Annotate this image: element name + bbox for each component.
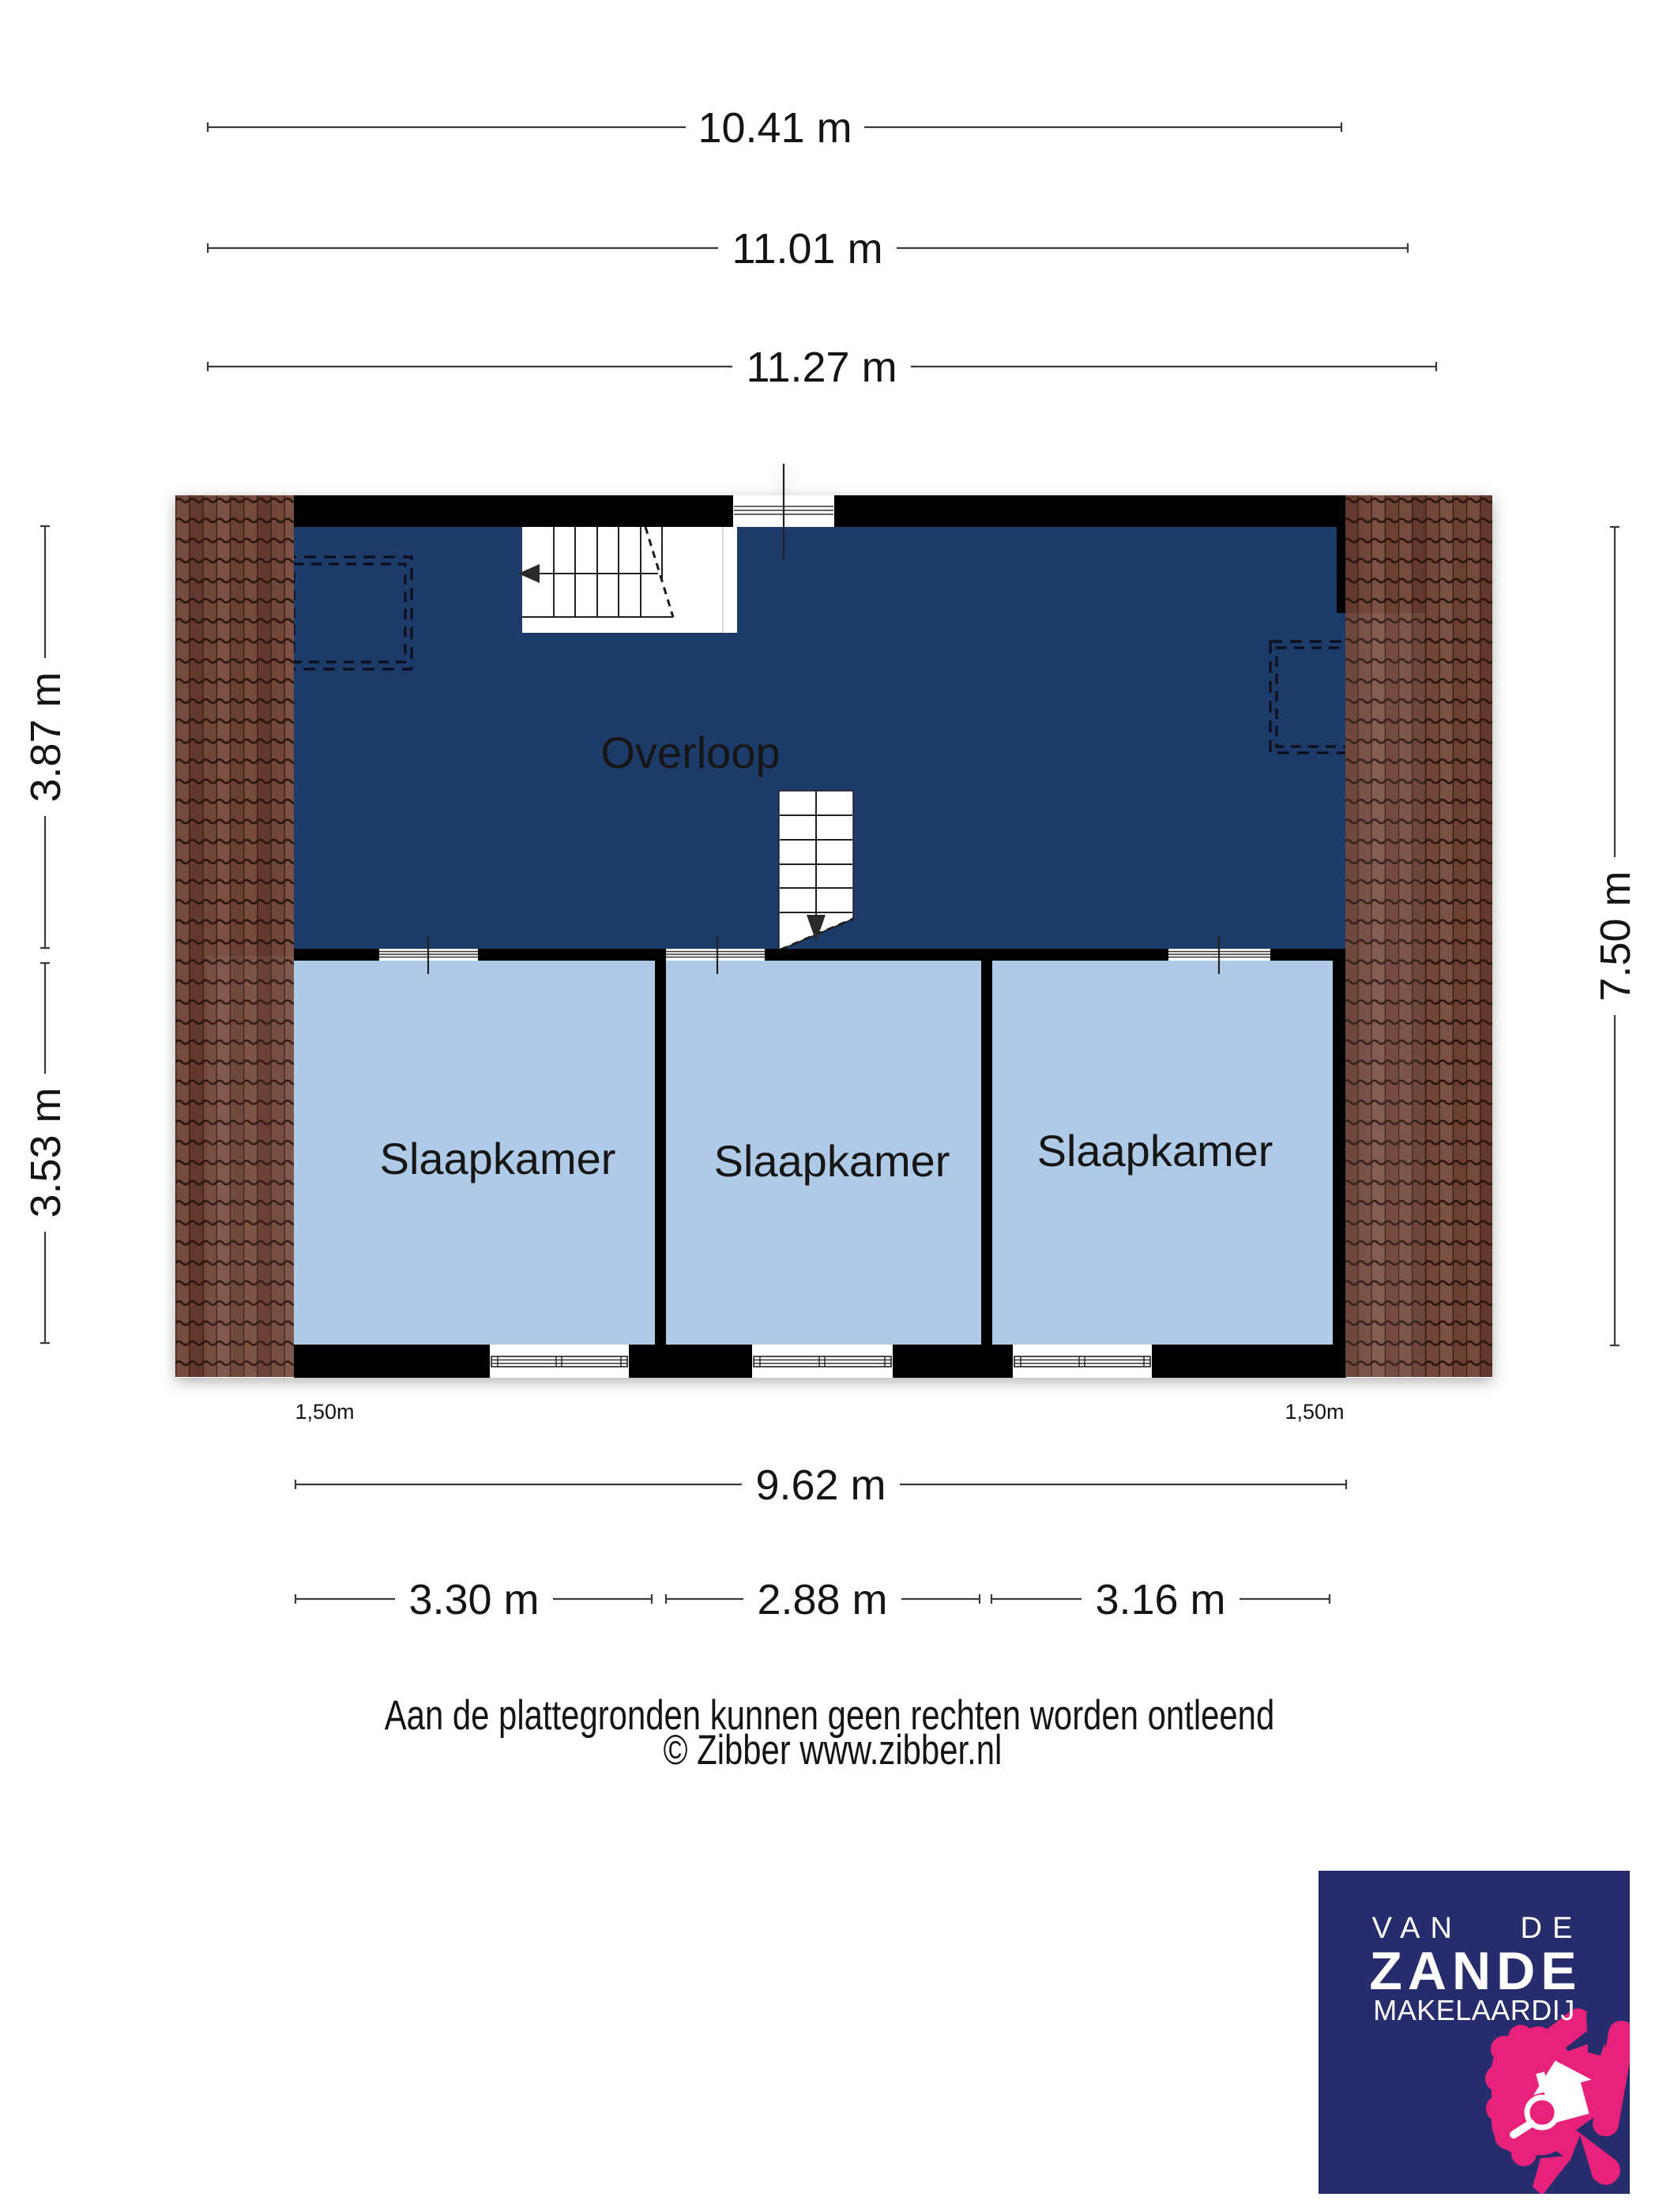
svg-text:MAKELAARDIJ: MAKELAARDIJ (1373, 1994, 1575, 2026)
svg-text:11.27 m: 11.27 m (746, 344, 897, 391)
svg-text:Slaapkamer: Slaapkamer (714, 1136, 950, 1186)
svg-text:Slaapkamer: Slaapkamer (1037, 1126, 1273, 1176)
svg-text:2.88 m: 2.88 m (757, 1576, 887, 1623)
svg-text:ZANDE: ZANDE (1369, 1941, 1582, 2001)
svg-text:9.62 m: 9.62 m (755, 1461, 886, 1509)
svg-text:1,50m: 1,50m (295, 1400, 354, 1424)
svg-text:3.30 m: 3.30 m (408, 1576, 539, 1623)
svg-text:7.50 m: 7.50 m (1592, 871, 1639, 1001)
svg-text:3.87 m: 3.87 m (22, 671, 70, 802)
svg-text:11.01 m: 11.01 m (732, 225, 882, 273)
svg-text:Overloop: Overloop (600, 728, 780, 777)
svg-text:3.16 m: 3.16 m (1095, 1576, 1225, 1623)
svg-text:VAN DE: VAN DE (1372, 1912, 1583, 1945)
svg-text:Slaapkamer: Slaapkamer (380, 1134, 616, 1183)
svg-text:1,50m: 1,50m (1285, 1400, 1344, 1424)
svg-text:3.53 m: 3.53 m (22, 1087, 70, 1217)
svg-text:© Zibber www.zibber.nl: © Zibber www.zibber.nl (664, 1727, 1003, 1774)
svg-text:10.41 m: 10.41 m (698, 104, 852, 152)
